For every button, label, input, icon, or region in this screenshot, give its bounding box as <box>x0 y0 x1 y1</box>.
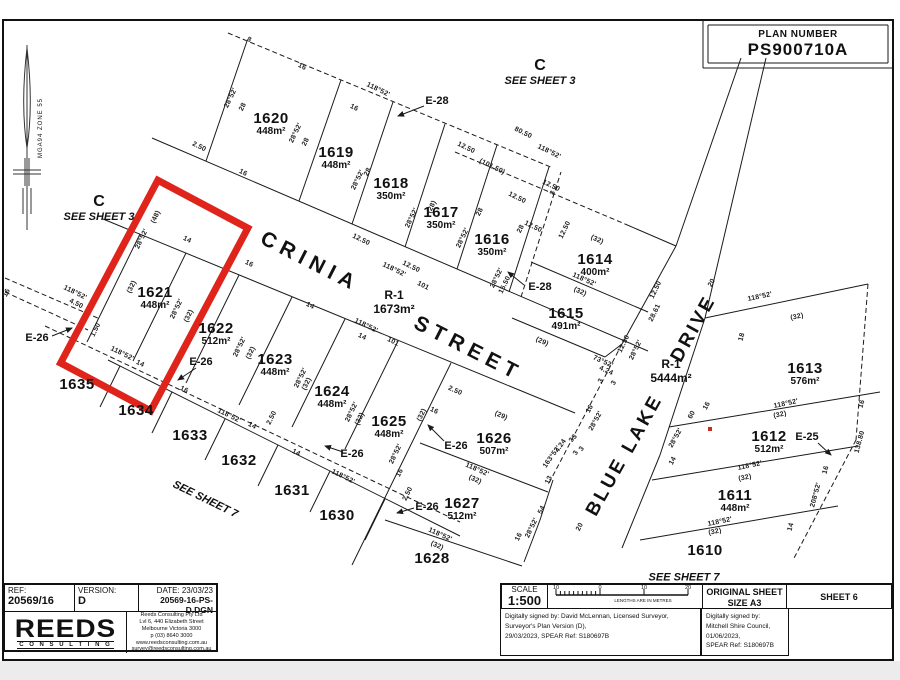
scale-bar-caption: LENGTHS ARE IN METRES <box>614 598 671 603</box>
svg-text:20: 20 <box>685 585 691 591</box>
boundary-line <box>258 445 278 486</box>
lot-area: 512m² <box>751 445 786 456</box>
lot-number: 1635 <box>59 377 94 393</box>
page-bottom-margin <box>0 661 900 680</box>
lot-label-1627: 1627512m² <box>444 496 479 522</box>
titleblock-left: REF: 20569/16 VERSION: D DATE: 23/03/23 … <box>3 583 218 652</box>
lot-number: 1620 <box>253 111 288 127</box>
svg-text:10: 10 <box>553 585 559 591</box>
easement-label-e-26: E-26 <box>415 501 438 513</box>
lot-label-1612: 1612512m² <box>751 429 786 455</box>
lot-area: 507m² <box>476 447 511 458</box>
address-line: Reeds Consulting Pty Ltd <box>140 612 202 619</box>
lot-area: 448m² <box>371 430 406 441</box>
lot-number: 1621 <box>137 285 172 301</box>
easement-label-e-26: E-26 <box>340 448 363 460</box>
boundary-line <box>310 471 330 512</box>
boundary-line <box>375 471 398 518</box>
svg-text:0: 0 <box>598 585 601 591</box>
easement-label-e-26: E-26 <box>444 440 467 452</box>
lot-number: 1618 <box>373 176 408 192</box>
boundary-line <box>352 518 375 565</box>
easement-label-e-25: E-25 <box>795 431 818 443</box>
signature-line: 01/06/2023, <box>706 632 784 642</box>
plan-number-label: PLAN NUMBER <box>758 29 837 40</box>
lot-area: 350m² <box>423 221 458 232</box>
address-line: Lvl 6, 440 Elizabeth Street <box>139 619 203 626</box>
lot-label-1619: 1619448m² <box>318 145 353 171</box>
boundary-line <box>705 284 868 318</box>
easement-arrow <box>818 443 831 455</box>
lot-label-1633: 1633 <box>172 428 207 444</box>
lot-label-1623: 1623448m² <box>257 352 292 378</box>
easement-arrow <box>52 328 72 336</box>
signature-line: Digitally signed by: <box>706 612 784 622</box>
lot-label-1625: 1625448m² <box>371 414 406 440</box>
lot-number: 1630 <box>319 508 354 524</box>
scale-bar: 1001020LENGTHS ARE IN METRES <box>548 585 703 608</box>
lot-label-1634: 1634 <box>118 403 153 419</box>
lot-label-1620: 1620448m² <box>253 111 288 137</box>
lot-number: 1631 <box>274 483 309 499</box>
lot-area: 448m² <box>137 301 172 312</box>
lot-number: 1624 <box>314 384 349 400</box>
lot-area: 448m² <box>253 127 288 138</box>
lot-label-1611: 1611448m² <box>718 488 753 514</box>
lot-number: 1634 <box>118 403 153 419</box>
lot-label-1614: 1614400m² <box>577 252 612 278</box>
easement-dashed-line <box>793 440 856 560</box>
ref-value: 20569/16 <box>8 595 71 607</box>
lot-number: 1619 <box>318 145 353 161</box>
plan-number-value: PS900710A <box>748 40 849 60</box>
boundary-line <box>676 58 741 246</box>
lot-number: 1632 <box>221 453 256 469</box>
signature-line: Surveyor's Plan Version (D), <box>505 622 696 632</box>
version-label: VERSION: <box>78 586 135 595</box>
north-arrow <box>13 45 41 230</box>
lot-label-1632: 1632 <box>221 453 256 469</box>
address-line: Melbourne Victoria 3000 <box>142 626 202 633</box>
logo-text: REEDS <box>15 618 116 639</box>
easement-arrow <box>178 368 196 380</box>
lot-label-1613: 1613576m² <box>787 361 822 387</box>
lot-area: 350m² <box>474 248 509 259</box>
boundary-line <box>385 520 522 566</box>
lot-number: 1611 <box>718 488 753 504</box>
lot-label-1621: 1621448m² <box>137 285 172 311</box>
lot-number: 1612 <box>751 429 786 445</box>
sheet-reference: CSEE SHEET 3 <box>64 192 135 224</box>
easement-label-e-26: E-26 <box>189 356 212 368</box>
lot-label-1626: 1626507m² <box>476 431 511 457</box>
sheet-size-value: SIZE A3 <box>703 598 786 609</box>
lot-label-1622: 1622512m² <box>198 321 233 347</box>
lot-area: 350m² <box>373 192 408 203</box>
easement-label-e-26: E-26 <box>25 332 48 344</box>
signature-line: Mitchell Shire Council, <box>706 622 784 632</box>
subdivision-plan-sheet: PLAN NUMBER PS900710A MGA94 ZONE 55 1620… <box>0 0 900 680</box>
lot-label-1610: 1610 <box>687 543 722 559</box>
boundary-line <box>365 499 385 540</box>
lot-area: 512m² <box>444 512 479 523</box>
easement-arrow <box>428 425 444 441</box>
lot-label-1624: 1624448m² <box>314 384 349 410</box>
lot-label-1615: 1615491m² <box>548 306 583 332</box>
sheet-number: SHEET 6 <box>787 585 891 608</box>
reserve-label: R-11673m² <box>373 289 414 317</box>
lot-number: 1614 <box>577 252 612 268</box>
lot-number: 1616 <box>474 232 509 248</box>
lot-number: 1623 <box>257 352 292 368</box>
sheet-reference: CSEE SHEET 3 <box>505 56 576 88</box>
north-arrow-label: MGA94 ZONE 55 <box>38 98 44 158</box>
reeds-logo: REEDS C O N S U L T I N G <box>5 612 127 653</box>
council-signature: Digitally signed by:Mitchell Shire Counc… <box>701 609 789 656</box>
easement-label-e-28: E-28 <box>425 95 448 107</box>
address-line: survey@reedsconsulting.com.au <box>132 646 212 653</box>
lot-number: 1627 <box>444 496 479 512</box>
lot-area: 491m² <box>548 322 583 333</box>
lot-number: 1622 <box>198 321 233 337</box>
boundary-line <box>352 102 393 224</box>
version-value: D <box>78 595 135 607</box>
lot-area: 448m² <box>257 368 292 379</box>
lot-number: 1628 <box>414 551 449 567</box>
easement-dashed-line <box>5 292 88 330</box>
address-line: www.reedsconsulting.com.au <box>136 640 207 647</box>
lot-area: 448m² <box>318 161 353 172</box>
lot-number: 1625 <box>371 414 406 430</box>
lot-label-1631: 1631 <box>274 483 309 499</box>
titleblock-right: SCALE 1:500 1001020LENGTHS ARE IN METRES… <box>500 583 893 658</box>
sheet-size-label: ORIGINAL SHEET <box>703 587 786 598</box>
easement-dashed-line <box>856 284 868 440</box>
lot-number: 1613 <box>787 361 822 377</box>
lot-number: 1610 <box>687 543 722 559</box>
lot-area: 576m² <box>787 377 822 388</box>
lot-label-1635: 1635 <box>59 377 94 393</box>
signature-line: 29/03/2023, SPEAR Ref: S180697B <box>505 632 696 642</box>
address-line: p (03) 8640 3000 <box>151 633 193 640</box>
lot-label-1628: 1628 <box>414 551 449 567</box>
lot-label-1618: 1618350m² <box>373 176 408 202</box>
lot-number: 1626 <box>476 431 511 447</box>
easement-label-e-28: E-28 <box>528 281 551 293</box>
lot-area: 512m² <box>198 337 233 348</box>
date-value: DATE: 23/03/23 <box>142 586 213 595</box>
lot-area: 448m² <box>314 400 349 411</box>
red-dot-marker <box>708 427 712 431</box>
reserve-label: R-15444m² <box>650 358 691 386</box>
svg-text:10: 10 <box>641 585 647 591</box>
easement-arrow <box>398 106 424 116</box>
signature-line: SPEAR Ref: S180697B <box>706 641 784 651</box>
lot-number: 1633 <box>172 428 207 444</box>
lot-number: 1615 <box>548 306 583 322</box>
company-address: Reeds Consulting Pty LtdLvl 6, 440 Eliza… <box>127 612 216 653</box>
signature-line: Digitally signed by: David McLennan, Lic… <box>505 612 696 622</box>
easement-dashed-line <box>228 33 553 168</box>
lot-label-1630: 1630 <box>319 508 354 524</box>
plan-number-box: PLAN NUMBER PS900710A <box>708 25 888 63</box>
lot-area: 448m² <box>718 504 753 515</box>
scale-value: 1:500 <box>502 594 547 608</box>
ref-label: REF: <box>8 586 71 595</box>
lot-label-1616: 1616350m² <box>474 232 509 258</box>
surveyor-signature: Digitally signed by: David McLennan, Lic… <box>500 609 701 656</box>
boundary-line <box>625 224 676 246</box>
